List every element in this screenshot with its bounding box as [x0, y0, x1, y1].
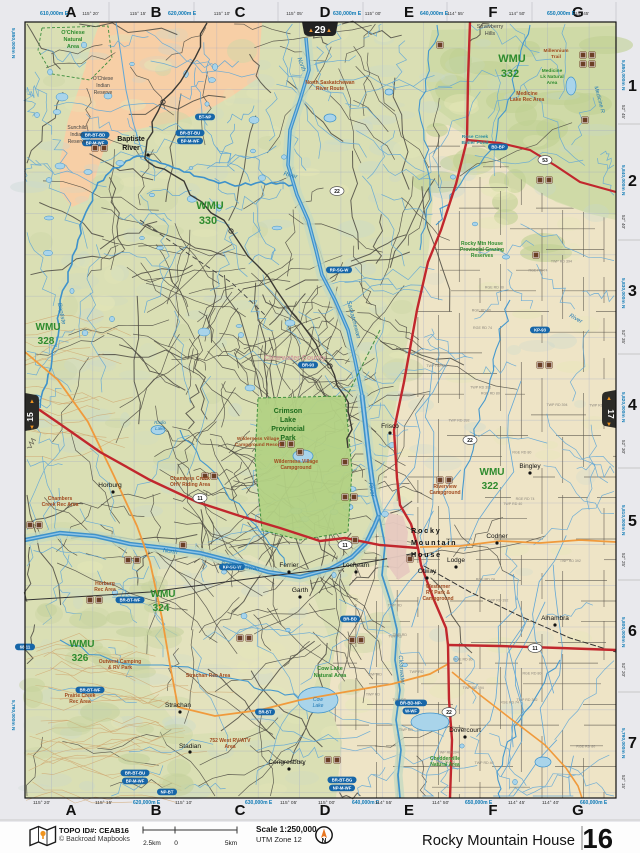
svg-text:115° 05': 115° 05' — [280, 800, 297, 806]
svg-text:114° 40': 114° 40' — [542, 800, 559, 806]
svg-text:Area: Area — [224, 744, 235, 750]
svg-text:WMU: WMU — [36, 322, 61, 333]
svg-text:22: 22 — [334, 189, 340, 195]
svg-text:Otway: Otway — [418, 568, 437, 575]
svg-text:115° 15': 115° 15' — [95, 800, 112, 806]
svg-text:5,820,000m N: 5,820,000m N — [620, 392, 626, 423]
svg-text:Rec Area: Rec Area — [69, 699, 91, 705]
svg-text:620,000m E: 620,000m E — [133, 800, 161, 806]
svg-text:Campground Resort: Campground Resort — [235, 442, 282, 448]
svg-text:326: 326 — [72, 653, 89, 664]
svg-text:114° 50': 114° 50' — [509, 11, 526, 16]
svg-text:TWP RD: TWP RD — [388, 635, 403, 639]
svg-text:Creek Rec Area: Creek Rec Area — [42, 502, 79, 508]
svg-text:Congresbury: Congresbury — [268, 759, 306, 766]
svg-text:TWP RD 40: TWP RD 40 — [503, 502, 522, 506]
svg-text:▼: ▼ — [29, 425, 35, 431]
svg-text:BR-93: BR-93 — [302, 363, 315, 368]
svg-text:610,000m E: 610,000m E — [40, 11, 69, 17]
svg-text:TWP RD: TWP RD — [409, 670, 424, 674]
svg-text:0: 0 — [174, 840, 178, 847]
svg-text:TWP RD 394: TWP RD 394 — [438, 751, 459, 755]
svg-text:NP-BT: NP-BT — [161, 790, 174, 795]
svg-text:River: River — [122, 145, 140, 152]
svg-text:RGE RD 80: RGE RD 80 — [485, 286, 504, 290]
svg-text:WMU: WMU — [151, 589, 176, 600]
svg-text:Park: Park — [280, 435, 295, 442]
svg-text:RGE RD 74: RGE RD 74 — [529, 268, 548, 272]
svg-text:Radio: Radio — [154, 420, 166, 425]
svg-text:WMU: WMU — [498, 53, 526, 65]
svg-text:TWP RD 392: TWP RD 392 — [516, 698, 537, 702]
svg-text:Campground: Campground — [429, 490, 460, 496]
svg-text:52° 25': 52° 25' — [621, 553, 626, 567]
svg-text:Lake: Lake — [155, 426, 165, 431]
svg-text:2: 2 — [628, 173, 637, 190]
svg-text:OHV Riding Area: OHV Riding Area — [170, 482, 210, 488]
svg-text:RGE RD 80: RGE RD 80 — [454, 658, 473, 662]
svg-text:& RV Park: & RV Park — [108, 665, 132, 671]
svg-text:5,790,000m N: 5,790,000m N — [10, 700, 16, 731]
svg-text:Trail: Trail — [551, 54, 561, 60]
svg-text:TWP RD 394: TWP RD 394 — [463, 686, 484, 690]
svg-text:W-WF: W-WF — [405, 709, 417, 714]
svg-text:TWP RD 40: TWP RD 40 — [475, 761, 494, 765]
svg-text:5,810,000m N: 5,810,000m N — [620, 505, 626, 536]
svg-text:BR-BT: BR-BT — [258, 710, 271, 715]
svg-text:WMU: WMU — [70, 639, 95, 650]
svg-text:C: C — [235, 4, 246, 21]
svg-text:15: 15 — [25, 412, 35, 422]
svg-text:Rocky Mountain House: Rocky Mountain House — [422, 833, 575, 849]
svg-text:Lochearn: Lochearn — [342, 562, 369, 569]
svg-text:Lake: Lake — [313, 703, 324, 709]
svg-text:332: 332 — [501, 68, 519, 80]
svg-text:115° 10': 115° 10' — [175, 800, 192, 806]
svg-text:TWP RD: TWP RD — [368, 672, 383, 676]
svg-text:E: E — [404, 802, 414, 819]
svg-text:Alhambra: Alhambra — [541, 615, 569, 622]
svg-text:Dovercourt: Dovercourt — [449, 727, 481, 734]
svg-text:BD-BP: BD-BP — [491, 145, 504, 150]
svg-text:RGE RD 80: RGE RD 80 — [522, 672, 541, 676]
svg-text:Ferrier: Ferrier — [279, 562, 299, 569]
svg-text:5,830,000m N: 5,830,000m N — [620, 278, 626, 309]
svg-text:322: 322 — [482, 481, 499, 492]
svg-text:115° 00': 115° 00' — [365, 11, 382, 16]
svg-text:Natural Area: Natural Area — [314, 673, 347, 679]
svg-text:Hills: Hills — [485, 31, 496, 37]
svg-text:Garth: Garth — [292, 587, 309, 594]
svg-text:TWP RD: TWP RD — [366, 693, 381, 697]
svg-text:▼: ▼ — [606, 422, 612, 428]
svg-text:5: 5 — [628, 513, 637, 530]
svg-text:BR-BT-BU: BR-BT-BU — [125, 771, 145, 776]
svg-text:TWP RD: TWP RD — [388, 603, 403, 607]
svg-text:RGE RD 74: RGE RD 74 — [500, 700, 519, 704]
svg-text:52° 45': 52° 45' — [621, 105, 626, 119]
svg-text:RGE RD 80: RGE RD 80 — [512, 450, 531, 454]
svg-text:328: 328 — [38, 336, 55, 347]
svg-text:TWP RD: TWP RD — [392, 698, 407, 702]
svg-text:Bingley: Bingley — [519, 463, 541, 470]
svg-text:Reserve: Reserve — [94, 90, 113, 96]
svg-text:Boiler Pond: Boiler Pond — [462, 140, 489, 146]
svg-text:BR-BT-BG: BR-BT-BG — [332, 778, 352, 783]
svg-text:Rocky: Rocky — [411, 526, 442, 535]
svg-text:5,850,000m N: 5,850,000m N — [10, 28, 16, 59]
svg-text:Provincial: Provincial — [271, 426, 305, 433]
svg-text:620,000m E: 620,000m E — [168, 11, 197, 17]
svg-text:BT-NP: BT-NP — [199, 115, 212, 120]
svg-text:52° 30': 52° 30' — [621, 440, 626, 454]
svg-text:53: 53 — [542, 158, 548, 164]
svg-text:114° 50': 114° 50' — [432, 800, 449, 806]
svg-text:WMU: WMU — [480, 467, 505, 478]
svg-text:© Backroad Mapbooks: © Backroad Mapbooks — [59, 835, 130, 843]
svg-text:114° 55': 114° 55' — [447, 11, 464, 16]
svg-text:Lake Rec Area: Lake Rec Area — [510, 97, 544, 103]
svg-text:650,000m E: 650,000m E — [465, 800, 493, 806]
svg-text:River Route: River Route — [316, 86, 344, 92]
svg-text:5,800,000m N: 5,800,000m N — [620, 617, 626, 648]
svg-text:Area: Area — [547, 80, 558, 86]
svg-text:RP-SG-W: RP-SG-W — [330, 268, 349, 273]
svg-text:UTM Zone 12: UTM Zone 12 — [256, 835, 302, 844]
svg-text:TWP RD 392: TWP RD 392 — [426, 364, 447, 368]
svg-text:Campground: Campground — [280, 465, 311, 471]
svg-text:BP-M-WF: BP-M-WF — [126, 779, 145, 784]
svg-text:RGE RD 80: RGE RD 80 — [481, 392, 500, 396]
svg-text:115° 00': 115° 00' — [318, 800, 335, 806]
svg-text:Rec Area: Rec Area — [94, 587, 116, 593]
svg-text:16: 16 — [582, 823, 613, 853]
svg-text:630,000m E: 630,000m E — [333, 11, 362, 17]
svg-text:52° 15': 52° 15' — [621, 775, 626, 789]
svg-text:B: B — [151, 4, 162, 21]
svg-text:BP-M-WF: BP-M-WF — [181, 139, 200, 144]
svg-text:640,000m E: 640,000m E — [420, 11, 449, 17]
svg-text:BR-BT-BU: BR-BT-BU — [180, 131, 200, 136]
svg-text:52° 35': 52° 35' — [621, 330, 626, 344]
svg-text:TOPO ID#: CEAB16: TOPO ID#: CEAB16 — [59, 826, 129, 835]
svg-text:TWP RD 392: TWP RD 392 — [560, 559, 581, 563]
svg-text:BR-BT-WF: BR-BT-WF — [80, 688, 101, 693]
svg-text:Area: Area — [67, 44, 80, 50]
svg-text:11: 11 — [197, 496, 203, 502]
svg-text:Mountain: Mountain — [411, 538, 457, 547]
svg-text:E: E — [404, 4, 414, 21]
svg-text:RGE RD 80: RGE RD 80 — [576, 744, 595, 748]
svg-text:114° 55': 114° 55' — [375, 800, 392, 806]
svg-text:5,840,000m N: 5,840,000m N — [620, 165, 626, 196]
svg-text:22: 22 — [446, 710, 452, 716]
svg-text:630,000m E: 630,000m E — [245, 800, 273, 806]
svg-text:Baptiste: Baptiste — [117, 136, 145, 143]
svg-text:O'Chiese: O'Chiese — [61, 30, 85, 36]
svg-text:22: 22 — [467, 438, 473, 444]
svg-text:F: F — [488, 4, 497, 21]
svg-text:Medicine: Medicine — [542, 68, 563, 74]
svg-text:Strawberry: Strawberry — [477, 24, 504, 30]
svg-text:O'Chiese: O'Chiese — [93, 76, 114, 82]
svg-text:Rose Creek: Rose Creek — [462, 134, 489, 140]
svg-text:115° 05': 115° 05' — [286, 11, 303, 16]
svg-text:TWP RD 392: TWP RD 392 — [448, 419, 469, 423]
svg-text:11: 11 — [342, 543, 348, 549]
svg-text:House: House — [411, 550, 442, 559]
svg-text:▲: ▲ — [308, 28, 314, 34]
svg-text:Stadian: Stadian — [179, 743, 201, 750]
svg-text:A: A — [66, 802, 77, 819]
svg-text:KP-93: KP-93 — [534, 328, 547, 333]
svg-text:5km: 5km — [225, 840, 237, 847]
svg-text:Indian: Indian — [70, 132, 84, 138]
svg-text:114° 45': 114° 45' — [573, 11, 590, 16]
svg-text:660,000m E: 660,000m E — [580, 800, 608, 806]
svg-text:▲: ▲ — [326, 28, 332, 34]
svg-text:Millennium: Millennium — [543, 48, 568, 54]
svg-text:115° 20': 115° 20' — [82, 11, 99, 16]
svg-text:Reserve: Reserve — [68, 139, 87, 145]
svg-text:5,850,000m N: 5,850,000m N — [620, 60, 626, 91]
svg-text:Strachan: Strachan — [165, 702, 191, 709]
svg-text:C: C — [235, 802, 246, 819]
svg-text:Scale 1:250,000: Scale 1:250,000 — [256, 825, 317, 834]
svg-text:Lake: Lake — [280, 417, 296, 424]
svg-text:7: 7 — [628, 735, 637, 752]
svg-text:324: 324 — [153, 603, 170, 614]
svg-text:D: D — [320, 4, 331, 21]
svg-text:RGE RD 74: RGE RD 74 — [516, 497, 535, 501]
svg-text:BR-BT-BD: BR-BT-BD — [85, 133, 105, 138]
svg-text:TWP RD 394: TWP RD 394 — [551, 259, 572, 263]
svg-text:BR-BT-WF: BR-BT-WF — [120, 598, 141, 603]
svg-text:Reserves: Reserves — [471, 253, 493, 259]
svg-text:11: 11 — [532, 646, 538, 652]
svg-text:4: 4 — [628, 397, 637, 414]
svg-text:▲: ▲ — [606, 396, 612, 402]
svg-text:3: 3 — [628, 283, 637, 300]
svg-text:Cow Lake: Cow Lake — [317, 666, 343, 672]
svg-text:Sunchild: Sunchild — [67, 125, 86, 131]
svg-text:115° 15': 115° 15' — [130, 11, 147, 16]
svg-text:115° 10': 115° 10' — [214, 11, 231, 16]
svg-text:114° 45': 114° 45' — [508, 800, 525, 806]
svg-text:TWP RD 394: TWP RD 394 — [546, 403, 567, 407]
svg-text:1: 1 — [628, 78, 637, 95]
svg-text:29: 29 — [314, 25, 326, 36]
svg-text:NP-M-WF: NP-M-WF — [333, 786, 352, 791]
svg-text:Strachan Rec Area: Strachan Rec Area — [186, 673, 230, 679]
svg-text:115° 20': 115° 20' — [33, 800, 50, 806]
svg-text:Codner: Codner — [486, 533, 508, 540]
svg-text:▲: ▲ — [29, 399, 35, 405]
svg-text:17: 17 — [606, 409, 616, 419]
svg-text:650,000m E: 650,000m E — [547, 11, 576, 17]
svg-text:BR-BD: BR-BD — [343, 617, 357, 622]
svg-text:6: 6 — [628, 623, 637, 640]
svg-text:52° 20': 52° 20' — [621, 663, 626, 677]
svg-text:RGE RD 80: RGE RD 80 — [472, 309, 491, 313]
svg-text:RGE RD 74: RGE RD 74 — [473, 326, 492, 330]
svg-text:Lk Natural: Lk Natural — [540, 74, 563, 80]
svg-text:Crimson: Crimson — [274, 408, 302, 415]
svg-text:RGE RD 74: RGE RD 74 — [476, 577, 495, 581]
svg-text:Wilderness Village: Wilderness Village — [237, 436, 280, 442]
svg-text:WMU: WMU — [196, 200, 224, 212]
svg-text:5,790,000m N: 5,790,000m N — [620, 728, 626, 759]
svg-text:Natural: Natural — [64, 37, 83, 43]
svg-text:TWP RD 392: TWP RD 392 — [487, 599, 508, 603]
svg-text:Natural Area: Natural Area — [430, 762, 460, 768]
svg-text:330: 330 — [199, 215, 217, 227]
svg-text:Frisco: Frisco — [381, 423, 399, 430]
svg-text:Indian: Indian — [96, 83, 110, 89]
svg-text:Horburg: Horburg — [98, 482, 122, 489]
svg-text:Clearwater County: Clearwater County — [264, 355, 326, 362]
svg-text:N: N — [322, 838, 327, 845]
svg-text:2.5km: 2.5km — [143, 840, 161, 847]
svg-text:TWP RD 392: TWP RD 392 — [470, 385, 491, 389]
svg-text:TWP RD: TWP RD — [399, 728, 414, 732]
svg-text:Lodge: Lodge — [447, 557, 465, 564]
svg-text:52° 40': 52° 40' — [621, 215, 626, 229]
svg-text:Campground: Campground — [422, 596, 453, 602]
